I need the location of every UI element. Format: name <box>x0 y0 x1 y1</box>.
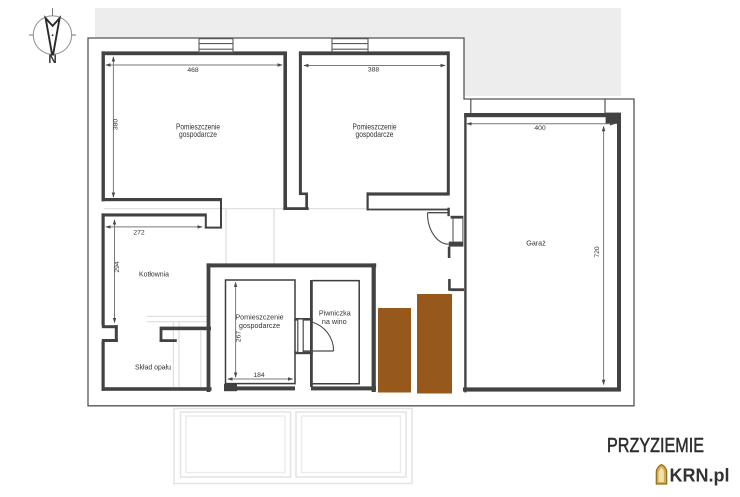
svg-text:gospodarcze: gospodarcze <box>179 130 217 139</box>
svg-text:Skład opału: Skład opału <box>135 363 171 372</box>
svg-text:Garaż: Garaż <box>526 239 546 248</box>
svg-text:400: 400 <box>534 125 546 132</box>
svg-text:388: 388 <box>368 67 380 74</box>
svg-text:na wino: na wino <box>322 317 347 326</box>
svg-text:267: 267 <box>235 331 242 343</box>
svg-text:720: 720 <box>594 246 601 258</box>
svg-text:N: N <box>48 54 56 66</box>
svg-text:468: 468 <box>187 67 199 74</box>
svg-text:272: 272 <box>133 229 145 236</box>
svg-text:380: 380 <box>113 119 120 131</box>
svg-text:gospodarcze: gospodarcze <box>356 130 394 139</box>
svg-text:Kotłownia: Kotłownia <box>139 270 169 279</box>
svg-text:gospodarcze: gospodarcze <box>239 321 280 330</box>
svg-text:294: 294 <box>114 261 121 273</box>
svg-text:PRZYZIEMIE: PRZYZIEMIE <box>607 434 704 457</box>
svg-text:KRN.pl: KRN.pl <box>670 466 730 486</box>
svg-text:184: 184 <box>253 372 265 379</box>
